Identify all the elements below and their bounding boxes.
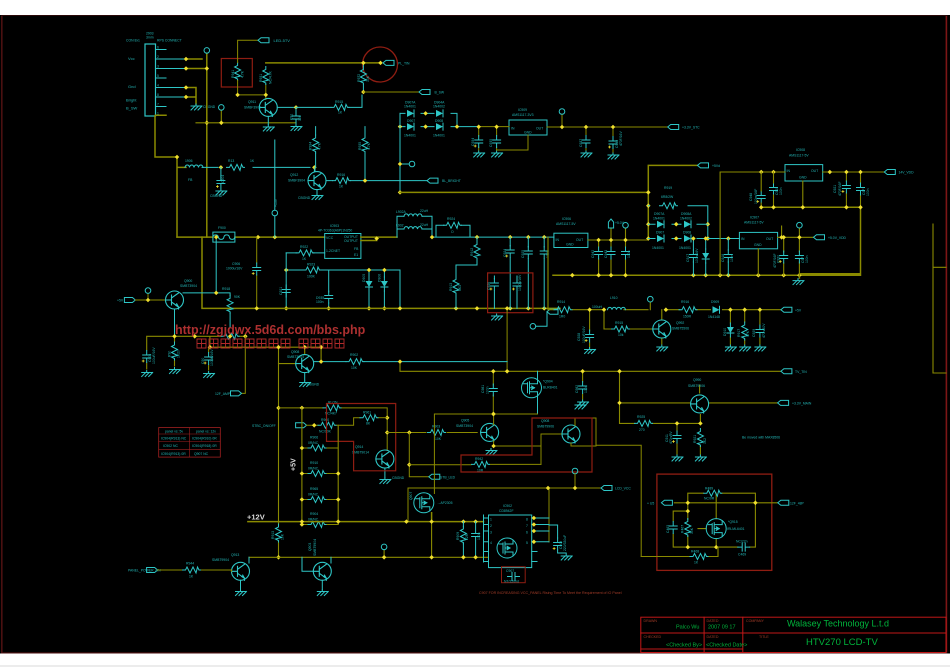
svg-text:D907: D907 xyxy=(656,231,664,235)
svg-text:+12V: +12V xyxy=(247,513,265,522)
svg-text:R923: R923 xyxy=(307,263,315,267)
svg-text:C469: C469 xyxy=(738,553,746,557)
svg-text:106: 106 xyxy=(298,115,302,121)
svg-text:270: 270 xyxy=(639,428,645,432)
svg-text:4.7K: 4.7K xyxy=(241,70,245,78)
svg-text:R914: R914 xyxy=(557,300,565,304)
svg-text:Q903: Q903 xyxy=(308,543,312,551)
svg-text:R912: R912 xyxy=(470,248,474,256)
svg-text:OUT: OUT xyxy=(576,238,583,242)
svg-text:LED-5TV: LED-5TV xyxy=(274,38,291,43)
svg-text:DRAWN: DRAWN xyxy=(644,619,658,623)
svg-text:D910: D910 xyxy=(723,328,727,336)
svg-text:IC908: IC908 xyxy=(796,148,805,152)
svg-text:3: 3 xyxy=(157,65,159,69)
svg-text:+15V: +15V xyxy=(274,198,278,207)
svg-text:R960: R960 xyxy=(321,418,329,422)
svg-text:Q907 NC: Q907 NC xyxy=(194,452,209,456)
svg-text:E1: E1 xyxy=(354,253,358,257)
svg-text:R916: R916 xyxy=(337,173,345,177)
svg-text:Q907: Q907 xyxy=(409,492,413,500)
svg-text:1000u/16V: 1000u/16V xyxy=(226,267,243,271)
svg-text:SMBF3904: SMBF3904 xyxy=(288,179,305,183)
svg-text:10K: 10K xyxy=(351,366,358,370)
svg-text:*Q915: *Q915 xyxy=(728,520,738,524)
svg-text:100n: 100n xyxy=(866,188,870,196)
svg-text:22uH: 22uH xyxy=(420,209,429,213)
svg-text:AMS1117-3V3: AMS1117-3V3 xyxy=(512,113,534,117)
svg-text:IC904(R913) 0R: IC904(R913) 0R xyxy=(161,452,186,456)
svg-text:OUT: OUT xyxy=(811,169,818,173)
svg-text:D909: D909 xyxy=(711,300,719,304)
svg-text:AMS1117-5V: AMS1117-5V xyxy=(744,221,764,225)
svg-text:STBC_ON/OFF: STBC_ON/OFF xyxy=(252,424,276,428)
svg-text:HTV270 LCD-TV: HTV270 LCD-TV xyxy=(806,637,878,648)
svg-text:470F/16V: 470F/16V xyxy=(619,131,623,146)
svg-text:+5V: +5V xyxy=(291,458,298,471)
svg-text:R467: R467 xyxy=(681,525,685,533)
svg-text:1906: 1906 xyxy=(185,159,193,163)
svg-text:*Q904: *Q904 xyxy=(543,380,553,384)
svg-text:<Checked By>: <Checked By> xyxy=(666,643,702,649)
svg-text:TITLE: TITLE xyxy=(759,635,769,639)
svg-text:C921: C921 xyxy=(833,185,837,193)
svg-text:SMBT9904: SMBT9904 xyxy=(313,539,317,556)
svg-text:6: 6 xyxy=(157,46,159,50)
svg-text:R468: R468 xyxy=(691,550,699,554)
svg-text:R90: R90 xyxy=(168,351,172,357)
svg-text:C90: C90 xyxy=(201,358,205,364)
svg-text:R906: R906 xyxy=(310,436,318,440)
svg-text:470n/50V: 470n/50V xyxy=(762,323,766,338)
svg-text:C981: C981 xyxy=(481,385,485,393)
svg-text:1K: 1K xyxy=(339,185,344,189)
svg-text:4P-TO363(A6P)1N250: 4P-TO363(A6P)1N250 xyxy=(318,229,352,233)
svg-text:CBGND: CBGND xyxy=(392,476,405,480)
svg-text:FB: FB xyxy=(354,247,359,251)
svg-text:1K: 1K xyxy=(694,561,699,565)
svg-text:100uF/16V: 100uF/16V xyxy=(152,347,156,364)
svg-text:100n: 100n xyxy=(730,254,734,262)
svg-text:RPS CONNECT: RPS CONNECT xyxy=(157,39,182,43)
svg-text:R903: R903 xyxy=(432,425,440,429)
svg-text:LCD_VCC: LCD_VCC xyxy=(615,487,631,491)
svg-text:C904: C904 xyxy=(221,175,225,183)
svg-text:B_SW: B_SW xyxy=(435,91,445,95)
svg-text:D906: D906 xyxy=(378,274,382,282)
svg-text:IN: IN xyxy=(787,169,791,173)
svg-text:8K: 8K xyxy=(366,422,371,426)
svg-text:R916: R916 xyxy=(681,300,689,304)
svg-text:CBGND: CBGND xyxy=(203,105,216,109)
svg-text:D908: D908 xyxy=(435,119,443,123)
svg-text:100uF/16V: 100uF/16V xyxy=(582,326,586,343)
svg-text:1K2: 1K2 xyxy=(703,438,707,444)
svg-text:47K: 47K xyxy=(746,330,750,337)
svg-text:470F/16F: 470F/16F xyxy=(838,181,842,196)
svg-text:IC909: IC909 xyxy=(518,108,527,112)
svg-text:100n: 100n xyxy=(486,386,490,394)
svg-text:FB: FB xyxy=(188,178,193,182)
svg-text:OUTPUT: OUTPUT xyxy=(344,239,358,243)
svg-text:100n: 100n xyxy=(779,187,783,195)
svg-text:C935: C935 xyxy=(489,139,493,147)
svg-text:4.7K: 4.7K xyxy=(367,142,371,150)
svg-text:CD8942F: CD8942F xyxy=(499,509,514,513)
svg-text:R917: R917 xyxy=(737,329,741,337)
svg-text:470n/5V: 470n/5V xyxy=(669,431,673,444)
svg-text:D907A: D907A xyxy=(654,212,665,216)
svg-text:12F_48P: 12F_48P xyxy=(790,502,804,506)
svg-text:OUT: OUT xyxy=(536,127,543,131)
svg-text:C928: C928 xyxy=(577,333,581,341)
svg-text:100uH: 100uH xyxy=(592,305,603,309)
svg-text:<Checked Date>: <Checked Date> xyxy=(706,643,747,649)
svg-text:100n: 100n xyxy=(627,250,631,258)
svg-text:10K: 10K xyxy=(435,437,442,441)
svg-text:COMPANY: COMPANY xyxy=(746,619,765,623)
svg-text:1000u/16V: 1000u/16V xyxy=(518,274,522,291)
svg-text:IC904(R913) NC: IC904(R913) NC xyxy=(161,436,187,440)
svg-text:panel vs: 12v: panel vs: 12v xyxy=(196,429,216,433)
svg-text:R965: R965 xyxy=(310,487,318,491)
svg-text:100K: 100K xyxy=(307,275,316,279)
svg-text:R921: R921 xyxy=(693,435,697,443)
svg-text:D908A: D908A xyxy=(681,212,692,216)
svg-text:C906: C906 xyxy=(232,262,240,266)
svg-text:R902: R902 xyxy=(350,353,358,357)
svg-text:Bright: Bright xyxy=(126,98,137,103)
svg-text:GND: GND xyxy=(754,243,762,247)
svg-text:4.7K: 4.7K xyxy=(318,142,322,150)
svg-text:8: 8 xyxy=(157,93,159,97)
svg-text:IC902 NC: IC902 NC xyxy=(163,444,178,448)
svg-text:R915: R915 xyxy=(615,321,623,325)
svg-text:100n: 100n xyxy=(584,385,588,393)
svg-text:C91: C91 xyxy=(290,114,294,120)
svg-text:1-2CNET: 1-2CNET xyxy=(326,249,340,253)
svg-text:R961: R961 xyxy=(363,411,371,415)
svg-text:IN: IN xyxy=(741,237,745,241)
svg-text:1N4002: 1N4002 xyxy=(680,217,692,221)
svg-text:IN: IN xyxy=(556,238,560,242)
svg-text:+5V: +5V xyxy=(795,309,802,313)
svg-text:90K: 90K xyxy=(234,295,241,299)
svg-text:F900: F900 xyxy=(218,226,226,230)
svg-text:SMBT5506: SMBT5506 xyxy=(672,327,689,331)
svg-text:R924: R924 xyxy=(447,217,455,221)
svg-text:IRLML6401: IRLML6401 xyxy=(727,527,745,531)
svg-text:C943: C943 xyxy=(604,250,608,258)
svg-text:10K: 10K xyxy=(690,527,694,534)
svg-text:1K20: 1K20 xyxy=(177,350,181,358)
svg-text:IC903: IC903 xyxy=(330,224,339,228)
svg-text:C982: C982 xyxy=(575,385,579,393)
svg-text:R919: R919 xyxy=(664,186,672,190)
svg-text:Q914: Q914 xyxy=(355,445,363,449)
svg-text:SMBT9014: SMBT9014 xyxy=(352,451,369,455)
svg-text:470F/16F: 470F/16F xyxy=(773,253,777,268)
svg-text:R913: R913 xyxy=(271,531,275,539)
svg-text:STB_LED: STB_LED xyxy=(440,475,456,479)
svg-text:0R/NC: 0R/NC xyxy=(308,493,319,497)
svg-text:D905: D905 xyxy=(362,274,366,282)
svg-text:2007 09 17: 2007 09 17 xyxy=(708,625,736,631)
svg-text:Q913: Q913 xyxy=(231,553,239,557)
svg-text:R972: R972 xyxy=(357,74,361,82)
svg-text:O: O xyxy=(451,230,454,234)
svg-text:C942: C942 xyxy=(591,250,595,258)
svg-text:C918: C918 xyxy=(721,254,725,262)
svg-text:R909: R909 xyxy=(456,532,460,540)
svg-text:CBGND: CBGND xyxy=(307,383,320,387)
svg-text:AMS1117-5V: AMS1117-5V xyxy=(789,154,809,158)
svg-text:SMBT3904: SMBT3904 xyxy=(287,355,304,359)
svg-text:NC/10K: NC/10K xyxy=(319,430,332,434)
svg-text:C929: C929 xyxy=(752,329,756,337)
svg-text:GND: GND xyxy=(524,131,532,135)
svg-text:AMS1117-5V: AMS1117-5V xyxy=(556,222,576,226)
svg-text:NC/22n: NC/22n xyxy=(736,540,748,544)
svg-text:D908: D908 xyxy=(683,231,691,235)
svg-text:22R: 22R xyxy=(465,533,469,540)
svg-text:1R0: 1R0 xyxy=(559,315,565,319)
svg-text:C925: C925 xyxy=(521,250,525,258)
svg-text:10K: 10K xyxy=(366,75,370,82)
svg-text:Q900: Q900 xyxy=(184,279,192,283)
svg-text:1N4002: 1N4002 xyxy=(433,105,445,109)
svg-text:1K: 1K xyxy=(302,257,307,261)
svg-text:R934: R934 xyxy=(309,142,313,150)
svg-text:1N4001: 1N4001 xyxy=(433,134,445,138)
svg-text:R935: R935 xyxy=(358,142,362,150)
svg-text:IC904(R918) 0R: IC904(R918) 0R xyxy=(192,444,217,448)
svg-text:1N4001: 1N4001 xyxy=(679,246,691,250)
svg-text:Be moved with MAX8506: Be moved with MAX8506 xyxy=(742,436,780,440)
svg-text:8: 8 xyxy=(526,518,528,522)
svg-text:SMBT9904: SMBT9904 xyxy=(212,558,229,562)
svg-text:R931: R931 xyxy=(259,74,263,82)
svg-text:+5Vd: +5Vd xyxy=(712,164,720,168)
svg-text:10k: 10k xyxy=(618,333,624,337)
svg-text:C921: C921 xyxy=(279,287,283,295)
svg-text:C463: C463 xyxy=(666,525,670,533)
svg-text:SMBT9906: SMBT9906 xyxy=(537,425,554,429)
svg-text:2: 2 xyxy=(157,55,159,59)
svg-text:L902: L902 xyxy=(396,224,404,228)
svg-text:Vcc: Vcc xyxy=(128,56,135,61)
svg-text:C937: C937 xyxy=(579,139,583,147)
svg-text:CON 8x1: CON 8x1 xyxy=(126,39,140,43)
svg-text:R489: R489 xyxy=(705,487,713,491)
svg-text:5: 5 xyxy=(526,541,528,545)
svg-text:1K: 1K xyxy=(338,111,343,115)
svg-text:NC/0R: NC/0R xyxy=(704,497,715,501)
svg-text:L902A: L902A xyxy=(396,210,407,214)
svg-text:NC/4.7K: NC/4.7K xyxy=(269,70,273,84)
svg-text:B_SW: B_SW xyxy=(126,106,138,111)
svg-text:+5.0V_VDD: +5.0V_VDD xyxy=(828,236,847,240)
svg-text:R918: R918 xyxy=(222,287,230,291)
svg-text:BLRB401: BLRB401 xyxy=(543,386,558,390)
svg-text:http://zgjdwx.5d6d.com/bbs.php: http://zgjdwx.5d6d.com/bbs.php xyxy=(175,323,366,337)
svg-text:CBGND: CBGND xyxy=(298,196,311,200)
svg-text:PANEL_POWER_ON: PANEL_POWER_ON xyxy=(128,569,161,573)
svg-text:150R: 150R xyxy=(683,315,692,319)
svg-text:GND: GND xyxy=(566,243,574,247)
svg-text:100n: 100n xyxy=(477,532,481,540)
svg-text:4: 4 xyxy=(157,84,159,88)
svg-text:SMBT3904: SMBT3904 xyxy=(456,424,473,428)
svg-text:Q992: Q992 xyxy=(676,321,684,325)
svg-text:R944: R944 xyxy=(186,562,194,566)
svg-text:6R8/2W: 6R8/2W xyxy=(661,195,674,199)
svg-text:D907: D907 xyxy=(407,119,415,123)
svg-text:IC906: IC906 xyxy=(562,217,571,221)
svg-text:3K3: 3K3 xyxy=(458,285,462,291)
svg-text:VCC: VCC xyxy=(326,236,334,240)
svg-text:Q908: Q908 xyxy=(291,350,299,354)
svg-text:IC904(R910) 0R: IC904(R910) 0R xyxy=(192,436,217,440)
svg-text:IC902: IC902 xyxy=(503,504,512,508)
svg-text:3mm: 3mm xyxy=(146,36,154,40)
svg-text:Q911: Q911 xyxy=(248,100,256,104)
svg-text:IN: IN xyxy=(511,127,515,131)
svg-text:+3.3V_MAIN: +3.3V_MAIN xyxy=(792,402,812,406)
svg-text:C948: C948 xyxy=(749,193,753,201)
svg-text:+ U5: + U5 xyxy=(647,501,654,505)
svg-text:R910: R910 xyxy=(310,461,318,465)
svg-text:SMBF3906: SMBF3906 xyxy=(244,106,261,110)
svg-text:PL_TIN: PL_TIN xyxy=(398,62,410,66)
svg-text:C920: C920 xyxy=(777,255,781,263)
svg-text:14V_VDD: 14V_VDD xyxy=(899,171,915,175)
svg-text:R941: R941 xyxy=(231,70,235,78)
svg-text:R925: R925 xyxy=(637,415,645,419)
svg-text:100n/16V: 100n/16V xyxy=(695,248,699,263)
svg-text:0R/NC: 0R/NC xyxy=(308,467,319,471)
svg-text:220/330uF: 220/330uF xyxy=(563,535,567,551)
svg-text:1N4001: 1N4001 xyxy=(404,134,416,138)
svg-text:100n: 100n xyxy=(805,255,809,263)
svg-text:Gnd: Gnd xyxy=(128,84,136,89)
svg-text:1K: 1K xyxy=(250,159,255,163)
svg-text:R913: R913 xyxy=(449,283,453,291)
svg-text:7: 7 xyxy=(526,524,528,528)
svg-text:DATED: DATED xyxy=(707,619,719,623)
svg-text:1N4148: 1N4148 xyxy=(708,315,720,319)
svg-text:GND: GND xyxy=(799,176,807,180)
svg-text:1N4001: 1N4001 xyxy=(653,217,665,221)
svg-text:22uH: 22uH xyxy=(420,223,429,227)
svg-text:C907: C907 xyxy=(506,569,514,573)
svg-text:100m/16F: 100m/16F xyxy=(754,189,758,204)
svg-text:0R/NC: 0R/NC xyxy=(308,441,319,445)
svg-text:5: 5 xyxy=(157,74,159,78)
svg-text:R915: R915 xyxy=(335,100,343,104)
svg-text:C926: C926 xyxy=(487,282,491,290)
svg-text:R942: R942 xyxy=(475,457,483,461)
svg-text:1K: 1K xyxy=(189,575,194,579)
svg-text:C934: C934 xyxy=(471,138,475,146)
svg-text:Q990: Q990 xyxy=(693,378,701,382)
svg-text:CBGND: CBGND xyxy=(210,194,223,198)
svg-text:IC907: IC907 xyxy=(750,216,759,220)
svg-text:Q905: Q905 xyxy=(461,419,469,423)
svg-text:100n: 100n xyxy=(316,300,324,304)
svg-text:BL_BRIGHT: BL_BRIGHT xyxy=(442,179,461,183)
svg-text:7: 7 xyxy=(157,103,159,107)
svg-text:3: 3 xyxy=(490,531,492,535)
svg-text:1N4001: 1N4001 xyxy=(652,246,664,250)
svg-text:10K: 10K xyxy=(281,533,285,540)
svg-text:OUT: OUT xyxy=(766,237,773,241)
svg-text:C924: C924 xyxy=(503,249,507,257)
svg-text:panel vs: 5v: panel vs: 5v xyxy=(165,429,183,433)
svg-text:→AP2305: →AP2305 xyxy=(437,501,453,505)
svg-text:100uF/16V: 100uF/16V xyxy=(210,349,214,366)
svg-text:+5V: +5V xyxy=(117,299,124,303)
svg-text:Palco Wu: Palco Wu xyxy=(676,625,699,631)
svg-text:DATED: DATED xyxy=(707,635,719,639)
svg-text:L910: L910 xyxy=(610,296,618,300)
svg-text:C907 FOR INCREASING VCC_PANEL: C907 FOR INCREASING VCC_PANEL Rising Tim… xyxy=(479,591,622,595)
svg-text:1: 1 xyxy=(490,518,492,522)
svg-text:SMBT9906: SMBT9906 xyxy=(688,384,705,388)
svg-text:1N4001: 1N4001 xyxy=(404,105,416,109)
svg-text:Q908: Q908 xyxy=(541,419,549,423)
svg-text:Q912: Q912 xyxy=(290,173,298,177)
svg-text:+3.3V_STC: +3.3V_STC xyxy=(682,126,700,130)
svg-text:12F_AMP: 12F_AMP xyxy=(215,392,231,396)
svg-text:Walasey Technology L.t.d: Walasey Technology L.t.d xyxy=(787,619,889,629)
svg-text:TV_TIN: TV_TIN xyxy=(795,370,807,374)
svg-text:NT/220nd: NT/220nd xyxy=(504,579,519,583)
svg-text:6: 6 xyxy=(526,531,528,535)
svg-text:R13: R13 xyxy=(228,159,234,163)
svg-text:SMBT3904: SMBT3904 xyxy=(180,284,197,288)
svg-text:R904: R904 xyxy=(310,512,318,516)
svg-text:R922: R922 xyxy=(300,245,308,249)
svg-text:C917: C917 xyxy=(686,254,690,262)
svg-text:CHECKED: CHECKED xyxy=(644,635,662,639)
svg-text:4: 4 xyxy=(490,541,492,545)
svg-text:2: 2 xyxy=(490,524,492,528)
